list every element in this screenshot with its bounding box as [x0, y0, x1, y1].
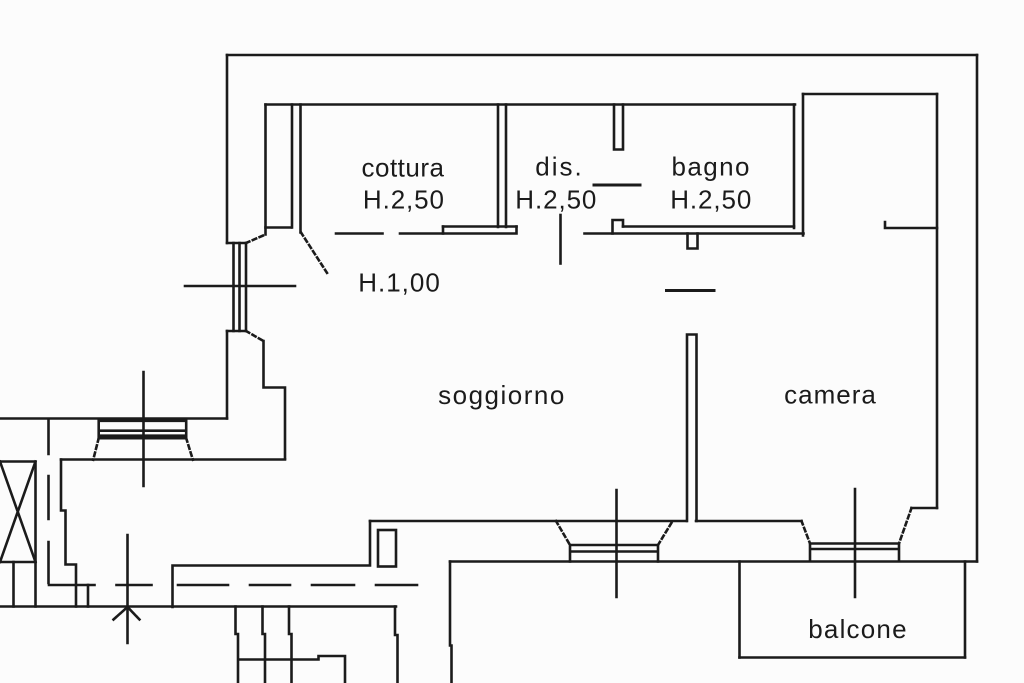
- svg-text:bagno: bagno: [672, 152, 751, 182]
- svg-text:H.2,50: H.2,50: [363, 185, 445, 215]
- svg-text:cottura: cottura: [362, 153, 445, 183]
- svg-text:soggiorno: soggiorno: [438, 380, 566, 410]
- svg-text:dis.: dis.: [535, 152, 583, 182]
- svg-text:H.2,50: H.2,50: [515, 185, 597, 215]
- svg-text:H.2,50: H.2,50: [670, 185, 752, 215]
- svg-text:H.1,00: H.1,00: [358, 268, 441, 298]
- svg-text:camera: camera: [784, 380, 877, 410]
- svg-text:balcone: balcone: [808, 614, 907, 644]
